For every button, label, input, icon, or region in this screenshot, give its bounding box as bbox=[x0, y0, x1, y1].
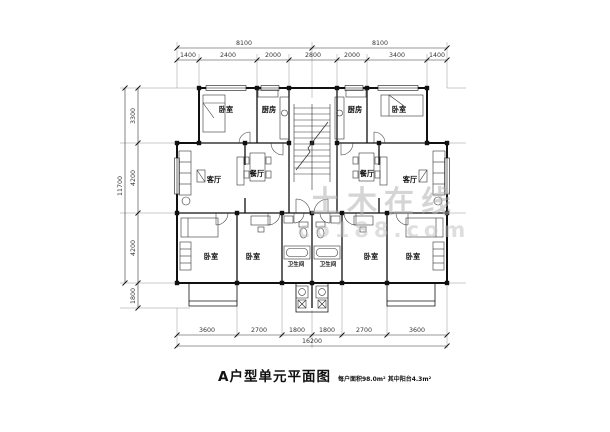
room-label-bedroom-bl2: 卧室 bbox=[246, 252, 260, 261]
dim-top-seg-4: 2000 bbox=[344, 52, 360, 59]
dimension-ticks bbox=[123, 46, 450, 349]
dim-bottom-seg-5: 3600 bbox=[409, 327, 425, 334]
dim-top-overall-left: 8100 bbox=[236, 40, 252, 47]
drawing-title: A户型单元平面图 bbox=[218, 365, 331, 385]
room-label-bedroom-tl: 卧室 bbox=[219, 105, 233, 114]
room-label-dining-right: 餐厅 bbox=[359, 169, 374, 178]
title-bar: A户型单元平面图 每户面积98.0m² 其中阳台4.3m² bbox=[218, 365, 431, 385]
area-note: 每户面积98.0m² 其中阳台4.3m² bbox=[338, 374, 431, 383]
room-label-living-left: 客厅 bbox=[206, 175, 221, 184]
room-label-bathroom-left: 卫生间 bbox=[288, 260, 305, 268]
dim-bottom-seg-1: 2700 bbox=[251, 327, 267, 334]
dim-top-seg-2: 2000 bbox=[265, 52, 281, 59]
dim-bottom-seg-0: 3600 bbox=[199, 327, 215, 334]
dim-left-seg-3: 1800 bbox=[130, 288, 137, 304]
room-label-kitchen-right: 厨房 bbox=[348, 105, 362, 114]
dim-bottom-seg-3: 1800 bbox=[319, 327, 335, 334]
room-label-bedroom-tr: 卧室 bbox=[392, 105, 406, 114]
room-label-kitchen-left: 厨房 bbox=[262, 105, 276, 114]
room-label-bedroom-br1: 卧室 bbox=[364, 252, 378, 261]
dim-left-seg-1: 4200 bbox=[130, 170, 137, 186]
room-label-bedroom-br2: 卧室 bbox=[406, 252, 420, 261]
dim-top-overall-right: 8100 bbox=[372, 40, 388, 47]
dim-bottom-overall: 16200 bbox=[302, 338, 322, 345]
floor-plan-sheet: 8100 8100 1400 2400 2000 2800 2000 3400 … bbox=[0, 0, 610, 432]
dim-top-seg-0: 1400 bbox=[180, 52, 196, 59]
dim-top-seg-1: 2400 bbox=[220, 52, 236, 59]
dim-top-seg-3: 2800 bbox=[305, 52, 321, 59]
room-label-dining-left: 餐厅 bbox=[249, 169, 264, 178]
room-label-living-right: 客厅 bbox=[402, 175, 417, 184]
room-label-bathroom-right: 卫生间 bbox=[320, 260, 337, 268]
room-label-bedroom-bl1: 卧室 bbox=[204, 252, 218, 261]
dim-left-seg-0: 3300 bbox=[130, 108, 137, 124]
dim-left-seg-2: 4200 bbox=[130, 240, 137, 256]
dim-top-seg-6: 1400 bbox=[429, 52, 445, 59]
dim-top-seg-5: 3400 bbox=[389, 52, 405, 59]
dim-bottom-seg-4: 2700 bbox=[356, 327, 372, 334]
dim-left-overall: 11700 bbox=[117, 176, 124, 196]
staircase bbox=[294, 104, 330, 190]
dim-bottom-seg-2: 1800 bbox=[289, 327, 305, 334]
